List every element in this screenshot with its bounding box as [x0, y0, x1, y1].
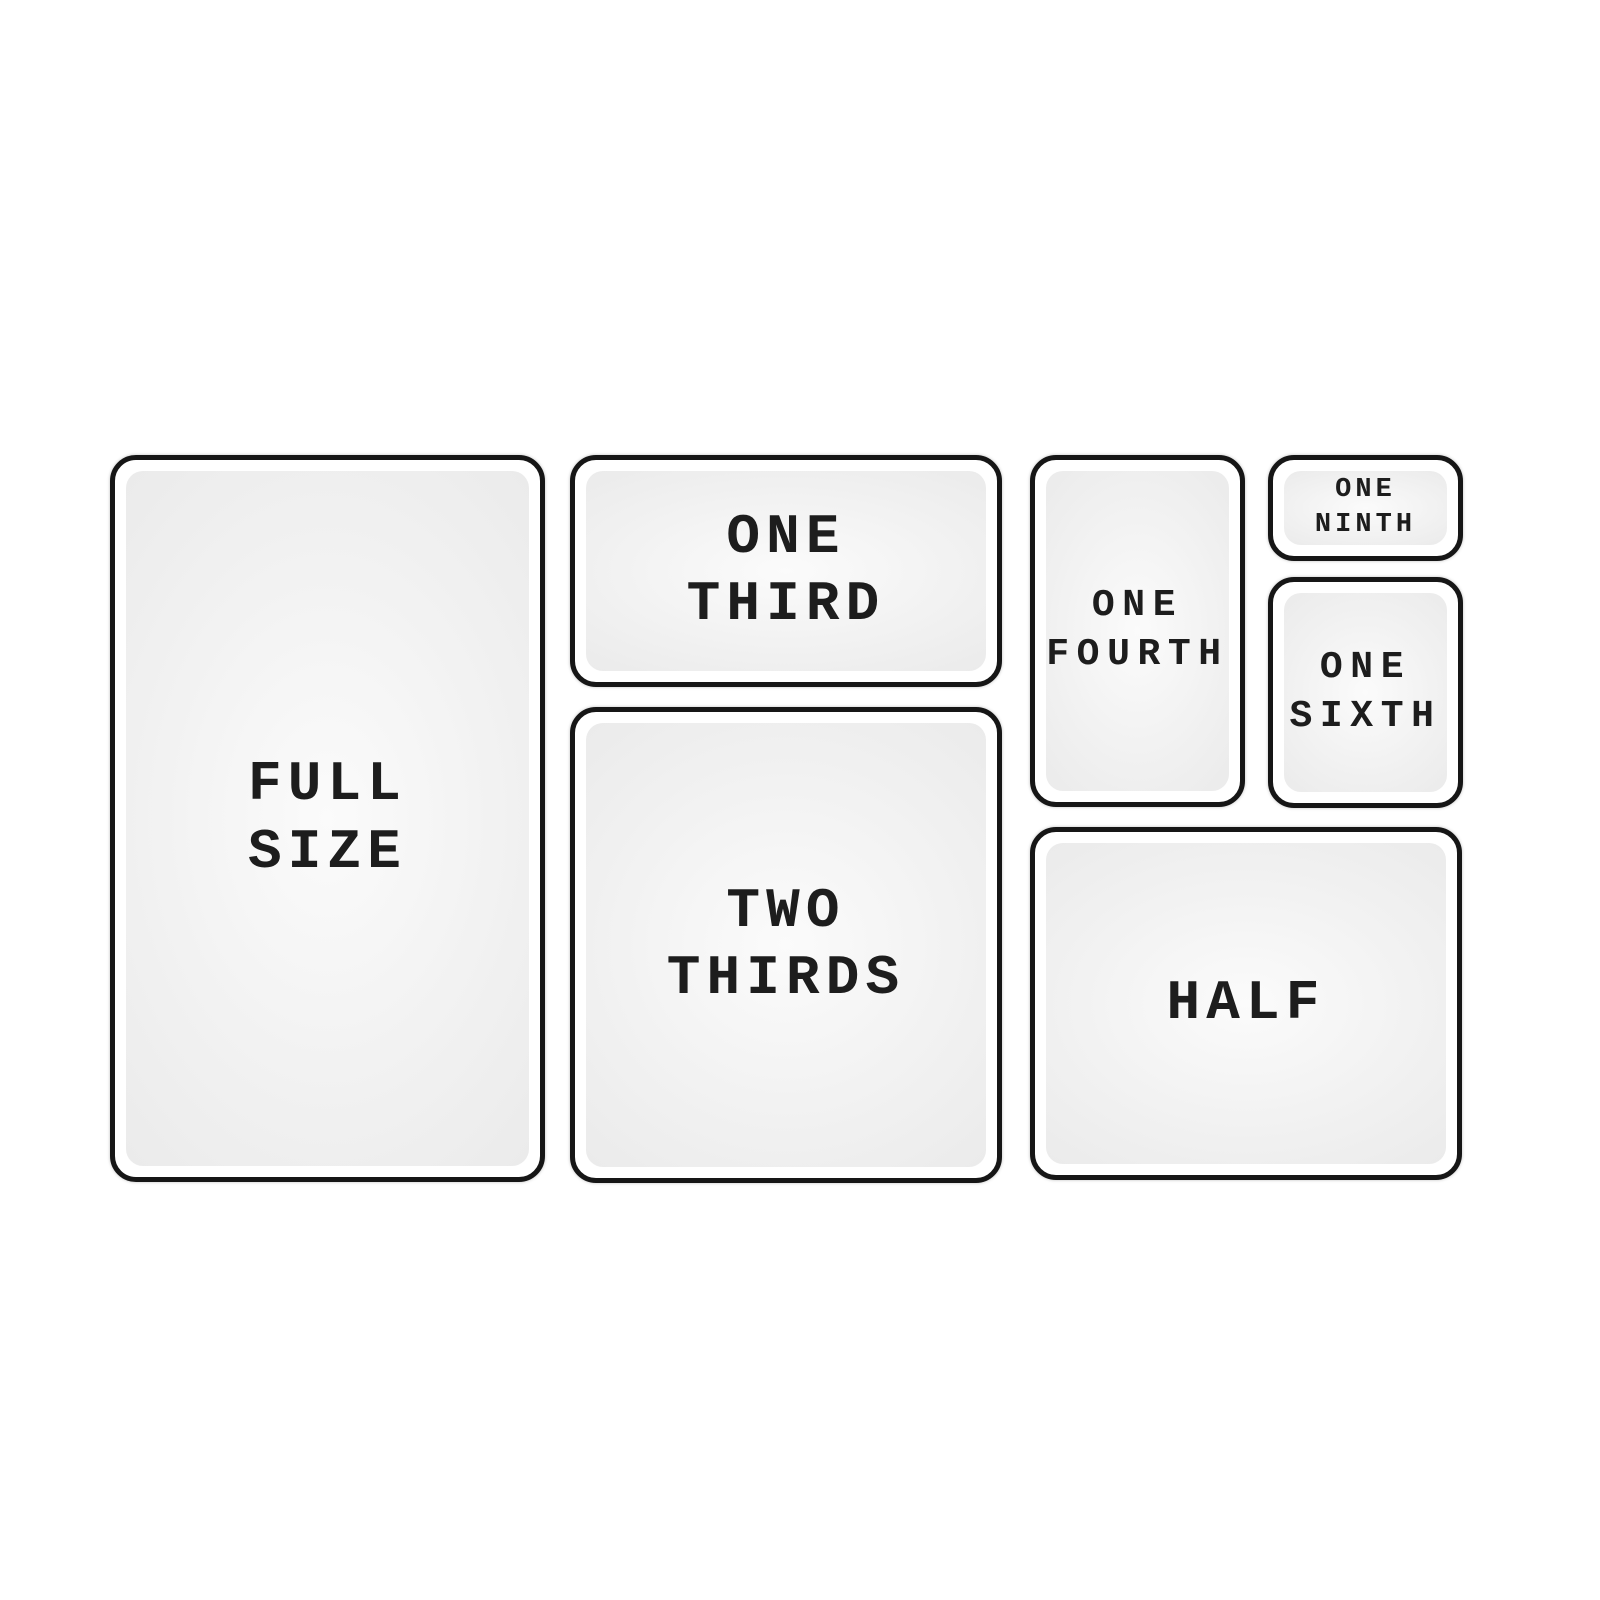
pan-one-fourth-label: ONE FOURTH — [1046, 582, 1228, 679]
label-line: ONE — [1046, 582, 1228, 631]
pan-one-sixth: ONE SIXTH — [1268, 577, 1463, 808]
pan-full-size-label: FULL SIZE — [248, 751, 407, 885]
label-line: ONE — [687, 504, 886, 571]
label-line: THIRD — [687, 571, 886, 638]
label-line: FULL — [248, 751, 407, 818]
pan-one-sixth-label: ONE SIXTH — [1289, 644, 1441, 741]
pan-two-thirds-surface: TWO THIRDS — [586, 723, 986, 1167]
pan-one-fourth-surface: ONE FOURTH — [1046, 471, 1229, 791]
pan-one-ninth-label: ONE NINTH — [1315, 473, 1416, 543]
label-line: ONE — [1289, 644, 1441, 693]
label-line: SIXTH — [1289, 693, 1441, 742]
label-line: FOURTH — [1046, 631, 1228, 680]
label-line: THIRDS — [667, 945, 906, 1012]
pan-two-thirds-label: TWO THIRDS — [667, 878, 906, 1012]
pan-one-fourth: ONE FOURTH — [1030, 455, 1245, 807]
pan-one-ninth: ONE NINTH — [1268, 455, 1463, 561]
pan-one-third-label: ONE THIRD — [687, 504, 886, 638]
label-line: NINTH — [1315, 508, 1416, 543]
pan-one-sixth-surface: ONE SIXTH — [1284, 593, 1447, 792]
pan-two-thirds: TWO THIRDS — [570, 707, 1002, 1183]
pan-half-label: HALF — [1166, 970, 1325, 1037]
pan-half: HALF — [1030, 827, 1462, 1180]
label-line: ONE — [1315, 473, 1416, 508]
pan-one-third-surface: ONE THIRD — [586, 471, 986, 671]
pan-full-size-surface: FULL SIZE — [126, 471, 529, 1166]
label-line: TWO — [667, 878, 906, 945]
pan-half-surface: HALF — [1046, 843, 1446, 1164]
pan-one-third: ONE THIRD — [570, 455, 1002, 687]
pan-full-size: FULL SIZE — [110, 455, 545, 1182]
pan-size-diagram: FULL SIZE ONE THIRD TWO THIRDS ONE FOURT… — [0, 0, 1600, 1600]
pan-one-ninth-surface: ONE NINTH — [1284, 471, 1447, 545]
label-line: HALF — [1166, 970, 1325, 1037]
label-line: SIZE — [248, 819, 407, 886]
